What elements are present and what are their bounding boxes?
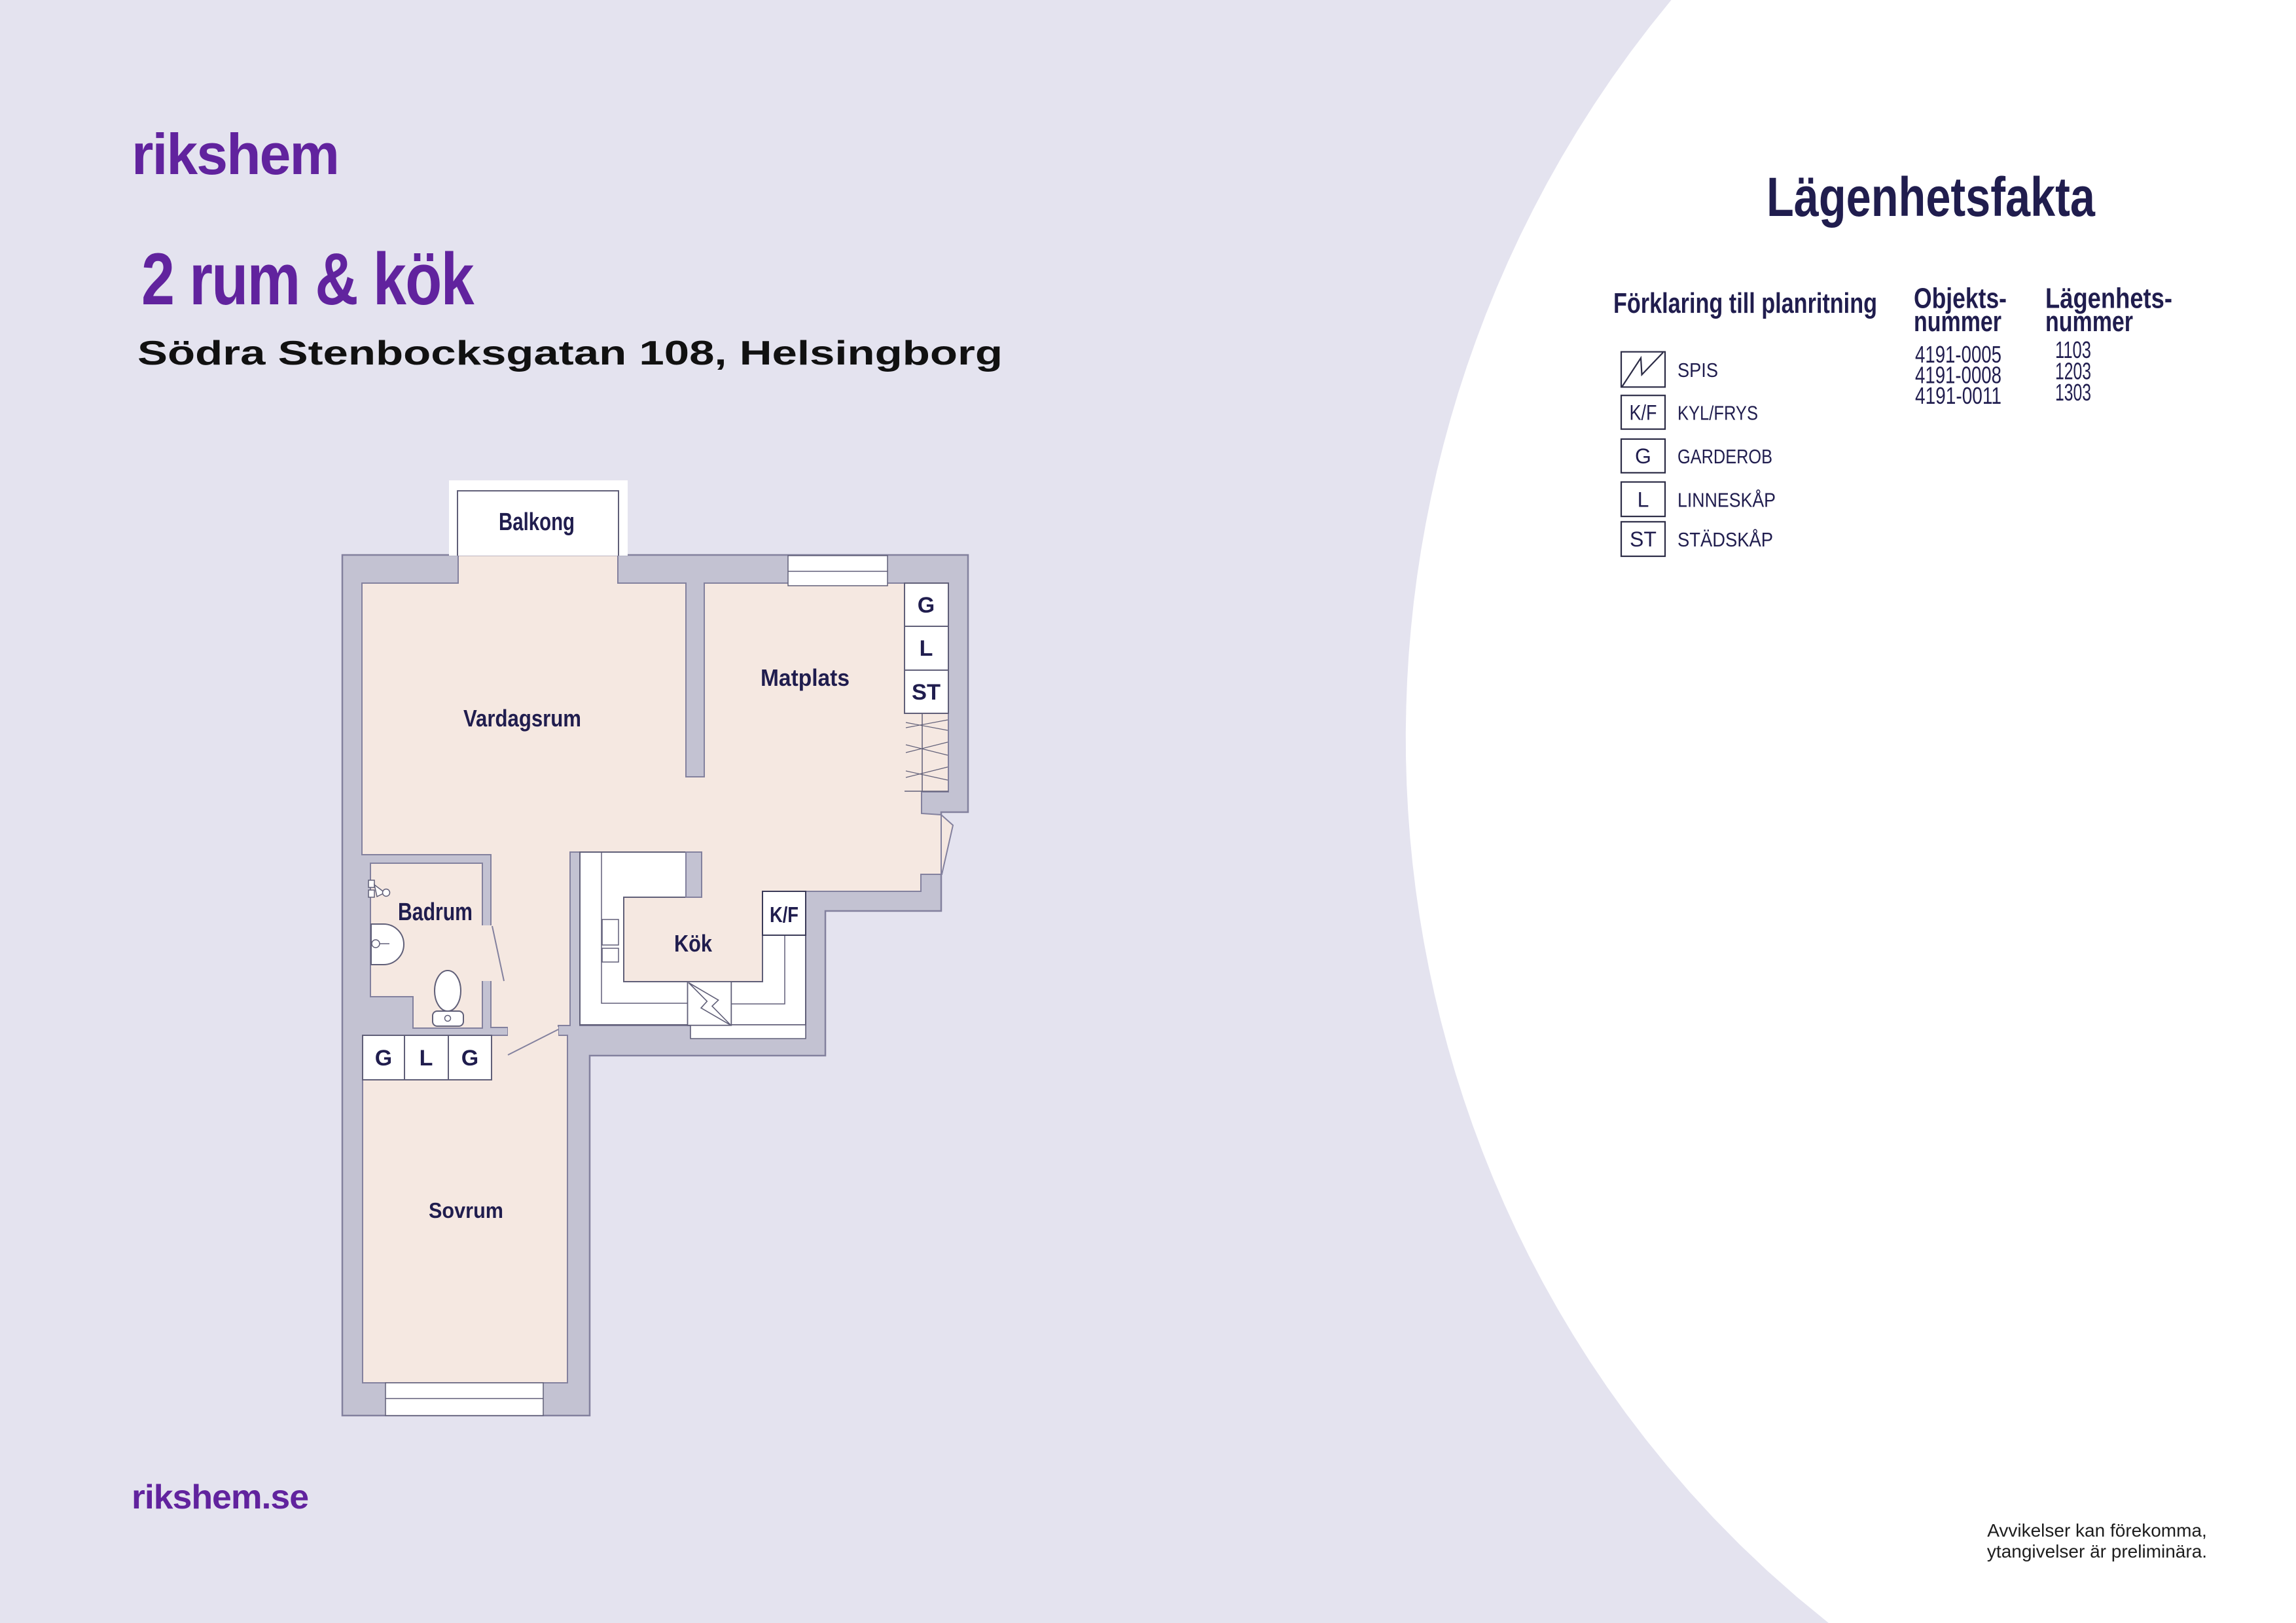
svg-text:Lägenhetsfakta: Lägenhetsfakta	[1767, 166, 2096, 228]
svg-text:rikshem: rikshem	[132, 122, 338, 187]
svg-text:G: G	[461, 1046, 478, 1071]
svg-text:Södra Stenbocksgatan 108, Hels: Södra Stenbocksgatan 108, Helsingborg	[137, 334, 1003, 372]
svg-text:4191-0011: 4191-0011	[1915, 382, 2001, 409]
svg-text:Vardagsrum: Vardagsrum	[463, 705, 581, 732]
svg-text:Badrum: Badrum	[398, 899, 473, 926]
svg-text:L: L	[420, 1046, 433, 1071]
svg-text:KYL/FRYS: KYL/FRYS	[1677, 401, 1758, 424]
svg-text:1303: 1303	[2055, 379, 2091, 406]
svg-text:G: G	[1635, 444, 1651, 468]
svg-text:Avvikelser kan förekomma,: Avvikelser kan förekomma,	[1987, 1520, 2207, 1541]
svg-text:L: L	[1638, 488, 1649, 511]
svg-text:SPIS: SPIS	[1677, 359, 1718, 382]
svg-text:Balkong: Balkong	[499, 508, 575, 536]
svg-text:LINNESKÅP: LINNESKÅP	[1677, 488, 1776, 511]
svg-text:ST: ST	[1630, 527, 1657, 551]
svg-text:nummer: nummer	[1914, 306, 2001, 338]
svg-text:STÄDSKÅP: STÄDSKÅP	[1677, 528, 1773, 551]
svg-text:ST: ST	[912, 680, 941, 705]
svg-text:nummer: nummer	[2045, 306, 2133, 338]
svg-text:K/F: K/F	[770, 902, 798, 927]
svg-text:G: G	[375, 1046, 392, 1071]
svg-text:Kök: Kök	[674, 930, 713, 957]
svg-text:2 rum & kök: 2 rum & kök	[141, 238, 475, 320]
svg-text:G: G	[918, 593, 935, 618]
svg-text:Förklaring till planritning: Förklaring till planritning	[1613, 287, 1877, 319]
svg-text:L: L	[920, 636, 933, 661]
svg-text:rikshem.se: rikshem.se	[132, 1478, 308, 1516]
svg-text:Matplats: Matplats	[761, 664, 850, 691]
svg-text:K/F: K/F	[1630, 401, 1657, 424]
svg-text:ytangivelser är preliminära.: ytangivelser är preliminära.	[1987, 1541, 2207, 1561]
svg-text:Sovrum: Sovrum	[429, 1198, 503, 1222]
svg-text:GARDEROB: GARDEROB	[1677, 445, 1772, 468]
